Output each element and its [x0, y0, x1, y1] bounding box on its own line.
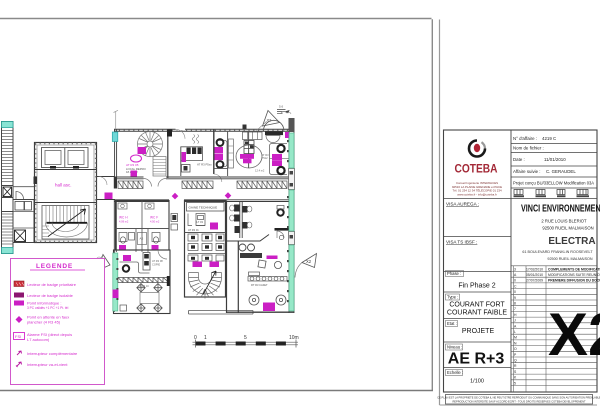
svg-text:P512: P512: [262, 156, 269, 160]
svg-text:0: 0: [514, 279, 516, 283]
svg-text:Niveau :: Niveau :: [447, 345, 462, 350]
svg-text:5.6: 5.6: [279, 105, 284, 109]
svg-text:1/100: 1/100: [470, 379, 484, 385]
svg-text:N° d'affaire :: N° d'affaire :: [513, 136, 537, 141]
svg-text:L: L: [514, 330, 516, 334]
svg-text:ELECTRA: ELECTRA: [548, 236, 595, 247]
svg-text:www.coteba.fr - info@coteba.: www.coteba.fr - info@coteba.fr: [457, 192, 497, 196]
svg-text:Nom de fichier :: Nom de fichier :: [513, 146, 544, 151]
svg-text:VISA AUREGA :: VISA AUREGA :: [446, 202, 479, 207]
svg-text:WC F: WC F: [150, 216, 158, 220]
svg-text:plancher (4 R3 45): plancher (4 R3 45): [27, 320, 61, 325]
svg-text:X2: X2: [267, 118, 273, 123]
svg-text:Q: Q: [514, 359, 517, 363]
svg-text:17/02/2010: 17/02/2010: [526, 267, 543, 271]
svg-text:COTEBA: COTEBA: [455, 162, 498, 176]
svg-text:AT R3 08: AT R3 08: [152, 259, 163, 263]
svg-text:10m: 10m: [289, 335, 299, 341]
svg-text:1: 1: [204, 335, 207, 341]
svg-text:12.4 m2: 12.4 m2: [255, 169, 265, 173]
svg-text:Interrupteur complémentaire: Interrupteur complémentaire: [27, 351, 78, 356]
svg-text:92500 RUEIL MALMAISON: 92500 RUEIL MALMAISON: [542, 225, 593, 230]
svg-text:AE R+3: AE R+3: [448, 351, 505, 368]
svg-text:8: 8: [514, 302, 516, 306]
svg-text:hall asc.: hall asc.: [55, 183, 72, 188]
svg-text:4.50 m2: 4.50 m2: [150, 220, 160, 224]
svg-text:X2: X2: [548, 301, 600, 368]
svg-text:REPRODUCTION INTERDITE SAUF AC: REPRODUCTION INTERDITE SAUF ACCORD ECRIT…: [452, 400, 586, 404]
svg-text:11/01/2010: 11/01/2010: [544, 157, 566, 162]
svg-text:M: M: [514, 336, 517, 340]
svg-text:Affaire suivie :: Affaire suivie :: [513, 169, 541, 174]
svg-text:FSI: FSI: [15, 334, 21, 339]
svg-text:3: 3: [514, 267, 516, 271]
svg-text:Fin Phase 2: Fin Phase 2: [458, 283, 495, 290]
svg-text:RT R3 CAFET: RT R3 CAFET: [251, 283, 268, 287]
svg-text:AT R3 01: AT R3 01: [188, 228, 199, 232]
svg-text:92500 RUEIL MALMAISON: 92500 RUEIL MALMAISON: [547, 257, 592, 261]
svg-text:0: 0: [514, 290, 516, 294]
svg-text:5: 5: [514, 381, 516, 385]
svg-text:Echelle :: Echelle :: [447, 370, 463, 375]
svg-text:4219 C: 4219 C: [542, 136, 556, 141]
svg-text:Phase :: Phase :: [447, 271, 461, 276]
svg-text:3 PC validés +1 PC +1 Pt. tél: 3 PC validés +1 PC +1 Pt. tél: [27, 306, 69, 310]
svg-text:PREMIERE DIFFUSION DU DOCUMENT: PREMIERE DIFFUSION DU DOCUMENT: [548, 279, 600, 283]
svg-text:Interrupteur va-et-vient: Interrupteur va-et-vient: [27, 362, 68, 367]
svg-text:Lecteur de badge prioritaire: Lecteur de badge prioritaire: [27, 282, 77, 287]
svg-text:AS: AS: [140, 237, 144, 241]
svg-text:AT R3 10: AT R3 10: [138, 284, 149, 288]
svg-text:COURANT FAIBLE: COURANT FAIBLE: [447, 310, 507, 317]
svg-text:0: 0: [194, 335, 197, 341]
svg-text:Projet conçu BU/33ELLOW Modifi: Projet conçu BU/33ELLOW Modification 03A: [513, 181, 594, 186]
svg-text:LEGENDE: LEGENDE: [36, 263, 73, 270]
svg-text:AT R3 P5xx: AT R3 P5xx: [197, 163, 212, 167]
svg-text:9: 9: [514, 296, 516, 300]
svg-text:VISA TS IBSF :: VISA TS IBSF :: [446, 240, 477, 245]
svg-text:WC H: WC H: [119, 216, 128, 220]
svg-text:L7 autocom): L7 autocom): [27, 337, 50, 342]
svg-text:COMPLEMENTS DE MODIFICATIONS D: COMPLEMENTS DE MODIFICATIONS DIVERSES: [548, 267, 600, 271]
svg-text:Date :: Date :: [513, 157, 525, 162]
svg-text:Point informatique :: Point informatique :: [27, 301, 61, 306]
svg-text:VINCI ENVIRONNEMENT: VINCI ENVIRONNEMENT: [521, 204, 600, 215]
svg-text:CE PLAN EST LA PROPRIETE DE CO: CE PLAN EST LA PROPRIETE DE COTEBA IL NE…: [437, 396, 600, 400]
svg-text:05/01/2010: 05/01/2010: [526, 273, 543, 277]
svg-text:Lecteur de badge isolable: Lecteur de badge isolable: [27, 293, 74, 298]
svg-text:O: O: [514, 347, 517, 351]
svg-text:5: 5: [244, 335, 247, 341]
svg-text:2 RUE LOUIS BLERIOT: 2 RUE LOUIS BLERIOT: [541, 218, 587, 223]
svg-text:COPIE: COPIE: [152, 262, 160, 266]
svg-text:PROJETE: PROJETE: [462, 328, 495, 335]
svg-text:LT 03: LT 03: [197, 220, 204, 224]
svg-text:X2: X2: [306, 259, 312, 264]
svg-text:J: J: [514, 319, 516, 323]
svg-text:Type :: Type :: [447, 295, 458, 300]
svg-text:4.09 m2: 4.09 m2: [119, 220, 129, 224]
svg-text:GAINE TECHNIQUE: GAINE TECHNIQUE: [189, 206, 218, 210]
svg-text:61 BOULEVARD FRANKLIN ROOSEVEL: 61 BOULEVARD FRANKLIN ROOSEVELT: [522, 250, 593, 254]
svg-text:MODIFICATIONS SUITE REUNION DU: MODIFICATIONS SUITE REUNION DU 17/12/09: [548, 273, 600, 277]
svg-text:Etat :: Etat :: [447, 321, 457, 326]
svg-text:7: 7: [514, 307, 516, 311]
svg-text:C. GERAUDEL: C. GERAUDEL: [546, 169, 576, 174]
svg-text:COURANT FORT: COURANT FORT: [449, 302, 505, 309]
svg-text:27/07/2009: 27/07/2009: [526, 279, 543, 283]
